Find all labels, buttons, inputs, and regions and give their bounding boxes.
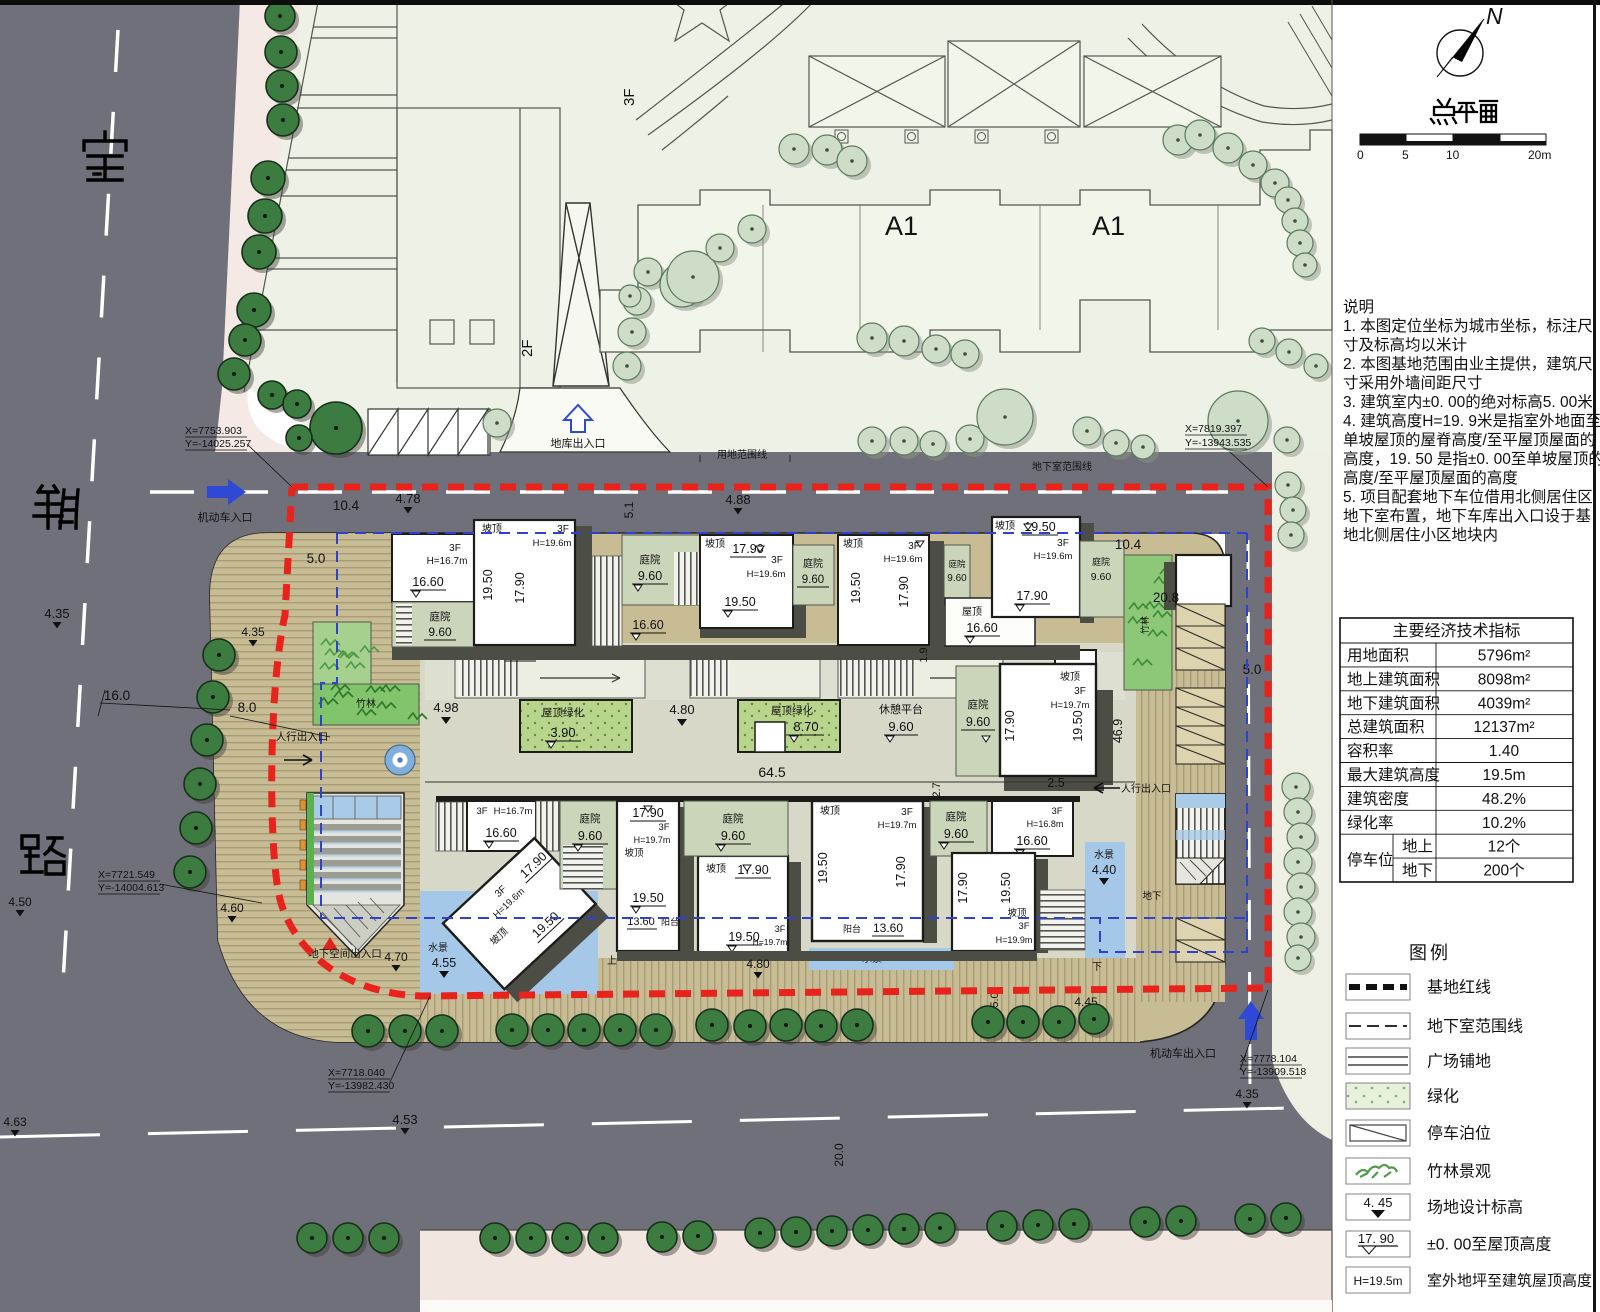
svg-text:17.90: 17.90 [513, 572, 527, 603]
svg-text:Y=-13982.430: Y=-13982.430 [328, 1080, 394, 1092]
svg-text:19.50: 19.50 [632, 891, 663, 905]
svg-text:5.0: 5.0 [989, 992, 1001, 1007]
svg-text:停车位: 停车位 [1347, 851, 1394, 869]
svg-text:48.2%: 48.2% [1482, 791, 1526, 808]
svg-text:A1: A1 [885, 211, 918, 241]
svg-text:9.60: 9.60 [1091, 571, 1112, 583]
svg-text:17.90: 17.90 [956, 872, 970, 903]
svg-text:上: 上 [607, 955, 617, 967]
svg-text:4.35: 4.35 [44, 606, 69, 621]
svg-text:5796m²: 5796m² [1478, 648, 1531, 665]
svg-text:20m: 20m [1528, 148, 1551, 162]
svg-text:高度，19. 50 是指±0. 00至单坡屋顶的: 高度，19. 50 是指±0. 00至单坡屋顶的 [1343, 450, 1600, 468]
svg-text:机动车入口: 机动车入口 [198, 510, 253, 524]
svg-text:庭院: 庭院 [430, 610, 451, 623]
svg-text:8098m²: 8098m² [1478, 671, 1531, 688]
svg-text:4039m²: 4039m² [1478, 695, 1531, 712]
svg-text:9.60: 9.60 [578, 829, 602, 843]
svg-text:4. 建筑高度H=19. 9米是指室外地面至: 4. 建筑高度H=19. 9米是指室外地面至 [1343, 412, 1600, 430]
svg-text:19.50: 19.50 [1071, 710, 1085, 741]
svg-text:3F: 3F [775, 924, 786, 934]
svg-text:机动车出入口: 机动车出入口 [1150, 1046, 1216, 1060]
svg-text:1. 本图定位坐标为城市坐标，标注尺: 1. 本图定位坐标为城市坐标，标注尺 [1343, 317, 1593, 335]
svg-text:H=16.7m: H=16.7m [494, 806, 533, 817]
svg-text:用地范围线: 用地范围线 [717, 448, 767, 461]
svg-text:10.4: 10.4 [333, 498, 360, 513]
svg-text:X=7718.040: X=7718.040 [328, 1067, 385, 1079]
svg-text:庭院: 庭院 [948, 559, 966, 569]
svg-text:最大建筑高度: 最大建筑高度 [1347, 766, 1440, 784]
svg-text:人行出入口: 人行出入口 [276, 730, 329, 743]
svg-text:地下: 地下 [1402, 862, 1433, 880]
svg-text:H=19.6m: H=19.6m [884, 554, 923, 565]
svg-text:2.5: 2.5 [1047, 776, 1064, 790]
svg-text:H=19.6m: H=19.6m [533, 538, 572, 549]
svg-text:17.90: 17.90 [1016, 589, 1047, 603]
svg-text:9.60: 9.60 [888, 719, 913, 734]
svg-text:室外地坪至建筑屋顶高度: 室外地坪至建筑屋顶高度 [1427, 1273, 1592, 1290]
svg-text:3F: 3F [771, 555, 783, 566]
svg-text:庭院: 庭院 [640, 553, 661, 566]
svg-text:2.7: 2.7 [931, 782, 943, 797]
svg-text:20.8: 20.8 [1153, 590, 1179, 605]
svg-text:N: N [1486, 3, 1503, 29]
svg-text:H=16.8m: H=16.8m [1027, 819, 1064, 829]
svg-text:庭院: 庭院 [1092, 556, 1110, 567]
svg-text:H=19.7m: H=19.7m [753, 937, 788, 947]
svg-text:0: 0 [1357, 148, 1364, 162]
svg-text:地下: 地下 [1142, 890, 1161, 902]
svg-text:地库出入口: 地库出入口 [551, 436, 606, 450]
svg-text:4.80: 4.80 [746, 957, 770, 971]
svg-text:坡顶: 坡顶 [1060, 670, 1080, 683]
svg-text:12个: 12个 [1488, 838, 1521, 856]
svg-text:坡顶: 坡顶 [705, 537, 725, 550]
svg-text:容积率: 容积率 [1347, 742, 1394, 760]
svg-text:4.78: 4.78 [395, 491, 420, 506]
svg-text:17.90: 17.90 [737, 863, 768, 877]
svg-text:4.70: 4.70 [384, 950, 408, 964]
svg-text:2. 本图基地范围由业主提供，建筑尺: 2. 本图基地范围由业主提供，建筑尺 [1343, 355, 1593, 373]
svg-text:5.0: 5.0 [307, 551, 326, 566]
svg-text:Y=-13943.535: Y=-13943.535 [1185, 437, 1251, 449]
svg-text:4.35: 4.35 [241, 625, 265, 639]
svg-text:3F: 3F [1051, 806, 1062, 817]
svg-text:X=7721.549: X=7721.549 [98, 869, 155, 881]
svg-text:5: 5 [1402, 148, 1409, 162]
svg-text:竹林: 竹林 [1139, 616, 1150, 634]
svg-text:人行出入口: 人行出入口 [1121, 782, 1171, 795]
svg-text:停车泊位: 停车泊位 [1427, 1125, 1491, 1143]
svg-text:9.60: 9.60 [802, 574, 824, 586]
svg-text:单坡屋顶的屋脊高度/至平屋顶屋面的: 单坡屋顶的屋脊高度/至平屋顶屋面的 [1343, 431, 1595, 449]
svg-text:9.60: 9.60 [721, 829, 745, 843]
svg-text:±0. 00至屋顶高度: ±0. 00至屋顶高度 [1427, 1236, 1551, 1254]
svg-text:2F: 2F [519, 339, 536, 357]
svg-text:阳台: 阳台 [843, 923, 861, 934]
svg-text:地下室范围线: 地下室范围线 [1032, 460, 1092, 473]
svg-text:H=19.6m: H=19.6m [747, 569, 786, 580]
svg-text:17.90: 17.90 [897, 576, 911, 607]
svg-text:19.50: 19.50 [999, 872, 1013, 903]
svg-text:12137m²: 12137m² [1473, 719, 1534, 736]
svg-text:地下空间出入口: 地下空间出入口 [308, 947, 382, 960]
svg-text:水景: 水景 [428, 942, 448, 954]
svg-text:20.0: 20.0 [832, 1143, 846, 1167]
svg-text:46.9: 46.9 [1111, 719, 1125, 743]
svg-text:庭院: 庭院 [580, 812, 601, 825]
svg-text:地北侧居住小区地块内: 地北侧居住小区地块内 [1343, 526, 1498, 544]
svg-text:H=19.7m: H=19.7m [878, 820, 917, 831]
svg-text:3F: 3F [449, 543, 461, 554]
svg-text:H=19.7m: H=19.7m [1051, 700, 1090, 711]
svg-text:3F: 3F [621, 88, 638, 106]
svg-text:屋顶: 屋顶 [962, 606, 982, 618]
svg-text:16.60: 16.60 [412, 575, 443, 589]
svg-text:竹林景观: 竹林景观 [1427, 1163, 1491, 1181]
svg-text:16.60: 16.60 [1016, 834, 1047, 848]
svg-text:4.50: 4.50 [8, 895, 32, 909]
svg-text:3.90: 3.90 [550, 725, 575, 740]
svg-text:坡顶: 坡顶 [843, 537, 863, 550]
svg-text:17. 90: 17. 90 [1358, 1231, 1394, 1246]
svg-text:16.60: 16.60 [485, 826, 516, 840]
svg-text:4.88: 4.88 [725, 492, 750, 507]
svg-text:5.1: 5.1 [622, 501, 636, 518]
svg-text:3F: 3F [658, 822, 669, 833]
svg-text:H=19.5m: H=19.5m [1353, 1274, 1402, 1288]
svg-text:4.80: 4.80 [669, 702, 694, 717]
svg-text:4.53: 4.53 [392, 1112, 417, 1127]
svg-text:4.55: 4.55 [432, 956, 456, 970]
svg-text:3F: 3F [901, 807, 913, 818]
svg-text:高度/至平屋顶屋面的高度: 高度/至平屋顶屋面的高度 [1343, 469, 1518, 487]
svg-text:基地红线: 基地红线 [1427, 979, 1491, 997]
svg-text:8.70: 8.70 [793, 719, 818, 734]
svg-text:休憩平台: 休憩平台 [879, 702, 923, 716]
svg-text:4.40: 4.40 [1092, 863, 1116, 877]
svg-text:9.60: 9.60 [428, 625, 452, 639]
svg-text:坡顶: 坡顶 [995, 519, 1015, 532]
svg-text:13.60: 13.60 [873, 921, 903, 935]
svg-text:19.50: 19.50 [481, 569, 495, 600]
svg-text:5.0: 5.0 [1243, 662, 1262, 677]
svg-text:4. 45: 4. 45 [1364, 1195, 1393, 1210]
svg-text:地下室范围线: 地下室范围线 [1427, 1018, 1523, 1036]
svg-text:16.60: 16.60 [966, 621, 997, 635]
svg-text:17.90: 17.90 [894, 856, 908, 887]
svg-text:3F: 3F [476, 806, 487, 817]
svg-text:3F: 3F [1018, 921, 1029, 932]
svg-text:庭院: 庭院 [803, 557, 823, 570]
svg-text:A1: A1 [1092, 211, 1125, 241]
svg-text:图例: 图例 [1409, 943, 1451, 963]
svg-text:3. 建筑室内±0. 00的绝对标高5. 00米: 3. 建筑室内±0. 00的绝对标高5. 00米 [1343, 393, 1593, 411]
svg-text:3F: 3F [908, 541, 920, 552]
svg-text:17.90: 17.90 [1003, 710, 1017, 741]
svg-text:说明: 说明 [1343, 298, 1374, 316]
svg-text:坡顶: 坡顶 [624, 847, 644, 859]
svg-text:坡顶: 坡顶 [820, 804, 840, 817]
svg-text:庭院: 庭院 [968, 698, 989, 711]
svg-text:16.60: 16.60 [632, 618, 663, 632]
svg-text:H=16.7m: H=16.7m [427, 556, 468, 567]
svg-text:4.98: 4.98 [433, 700, 458, 715]
svg-text:X=7778.104: X=7778.104 [1240, 1053, 1297, 1065]
svg-text:10.2%: 10.2% [1482, 815, 1526, 832]
svg-text:1.40: 1.40 [1489, 743, 1520, 760]
svg-text:19.5m: 19.5m [1482, 767, 1525, 784]
svg-text:8.0: 8.0 [238, 700, 257, 715]
svg-text:地上: 地上 [1402, 838, 1433, 856]
svg-text:200个: 200个 [1483, 862, 1525, 880]
svg-text:9.60: 9.60 [947, 573, 967, 584]
svg-text:3F: 3F [1074, 686, 1086, 697]
svg-text:庭院: 庭院 [946, 810, 967, 823]
svg-text:总建筑面积: 总建筑面积 [1347, 718, 1425, 736]
svg-text:寸采用外墙间距尺寸: 寸采用外墙间距尺寸 [1343, 374, 1483, 392]
svg-text:4.63: 4.63 [3, 1115, 27, 1129]
svg-text:H=19.6m: H=19.6m [1034, 551, 1073, 562]
svg-text:主要经济技术指标: 主要经济技术指标 [1392, 622, 1520, 640]
svg-text:用地面积: 用地面积 [1347, 647, 1409, 665]
svg-text:建筑密度: 建筑密度 [1347, 790, 1409, 808]
svg-text:寸及标高均以米计: 寸及标高均以米计 [1343, 336, 1467, 354]
svg-text:绿化: 绿化 [1427, 1088, 1459, 1106]
svg-text:X=7819.397: X=7819.397 [1185, 423, 1242, 435]
svg-text:坡顶: 坡顶 [706, 862, 726, 875]
svg-text:屋顶绿化: 屋顶绿化 [771, 704, 813, 717]
svg-text:竹林: 竹林 [356, 697, 376, 710]
svg-text:9.60: 9.60 [966, 715, 990, 729]
svg-text:场地设计标高: 场地设计标高 [1427, 1199, 1523, 1217]
svg-text:19.50: 19.50 [849, 572, 863, 603]
svg-text:10: 10 [1446, 148, 1460, 162]
svg-text:地下室布置，地下车库出入口设于基: 地下室布置，地下车库出入口设于基 [1343, 507, 1591, 525]
svg-text:H=19.9m: H=19.9m [996, 935, 1033, 945]
svg-text:9.60: 9.60 [638, 569, 662, 583]
svg-text:5. 项目配套地下车位借用北侧居住区: 5. 项目配套地下车位借用北侧居住区 [1343, 488, 1593, 506]
svg-text:X=7753.903: X=7753.903 [185, 425, 242, 437]
svg-text:地下建筑面积: 地下建筑面积 [1347, 694, 1440, 712]
svg-text:Y=-14025.257: Y=-14025.257 [185, 438, 251, 450]
svg-text:16.0: 16.0 [104, 688, 130, 703]
svg-text:地上建筑面积: 地上建筑面积 [1347, 670, 1440, 688]
svg-text:屋顶绿化: 屋顶绿化 [542, 706, 584, 719]
svg-text:64.5: 64.5 [758, 764, 785, 780]
svg-text:4.60: 4.60 [220, 901, 244, 915]
svg-text:19.50: 19.50 [816, 852, 830, 883]
svg-text:广场铺地: 广场铺地 [1427, 1053, 1491, 1071]
svg-text:4.35: 4.35 [1235, 1087, 1259, 1101]
svg-text:绿化率: 绿化率 [1347, 814, 1394, 832]
svg-text:下: 下 [1092, 962, 1102, 973]
svg-text:水景: 水景 [1094, 849, 1114, 861]
svg-text:1.9: 1.9 [918, 647, 930, 662]
svg-text:3F: 3F [1057, 538, 1069, 549]
svg-text:Y=-13909.518: Y=-13909.518 [1240, 1066, 1306, 1078]
svg-text:10.4: 10.4 [1115, 537, 1142, 552]
svg-text:庭院: 庭院 [723, 812, 744, 825]
svg-text:19.50: 19.50 [724, 595, 755, 609]
svg-text:H=19.7m: H=19.7m [634, 835, 671, 845]
svg-text:9.60: 9.60 [944, 827, 968, 841]
svg-text:Y=-14004.613: Y=-14004.613 [98, 882, 164, 894]
